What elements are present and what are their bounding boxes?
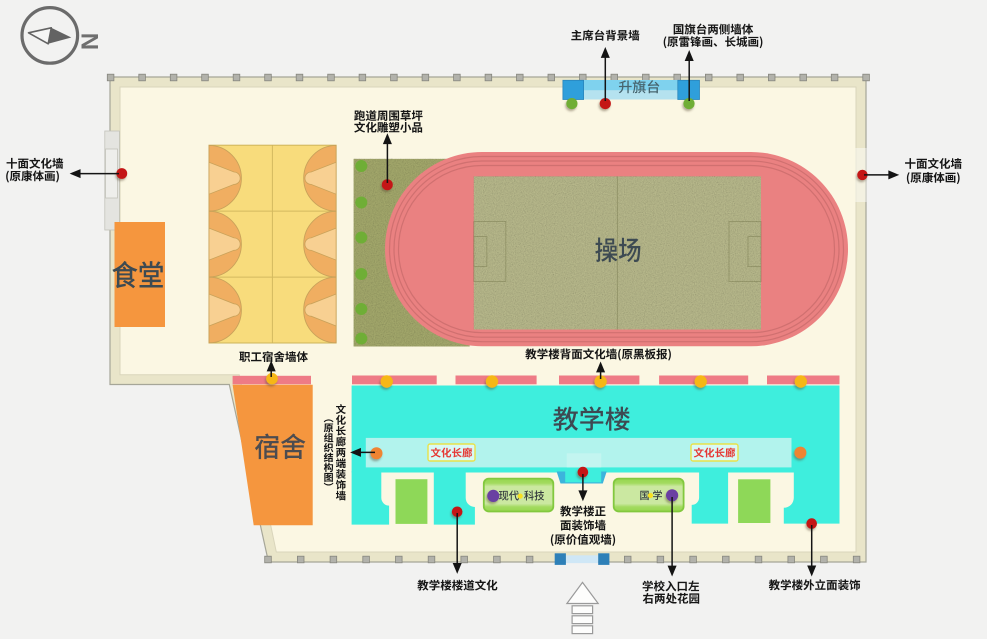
svg-text:N: N (76, 33, 103, 50)
